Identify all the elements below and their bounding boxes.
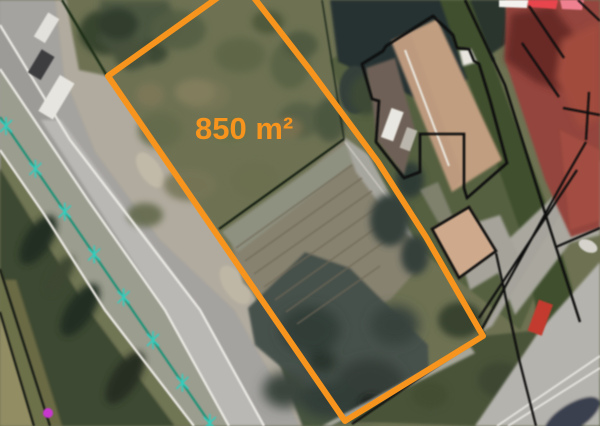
svg-text:850 m²: 850 m² bbox=[195, 111, 293, 146]
